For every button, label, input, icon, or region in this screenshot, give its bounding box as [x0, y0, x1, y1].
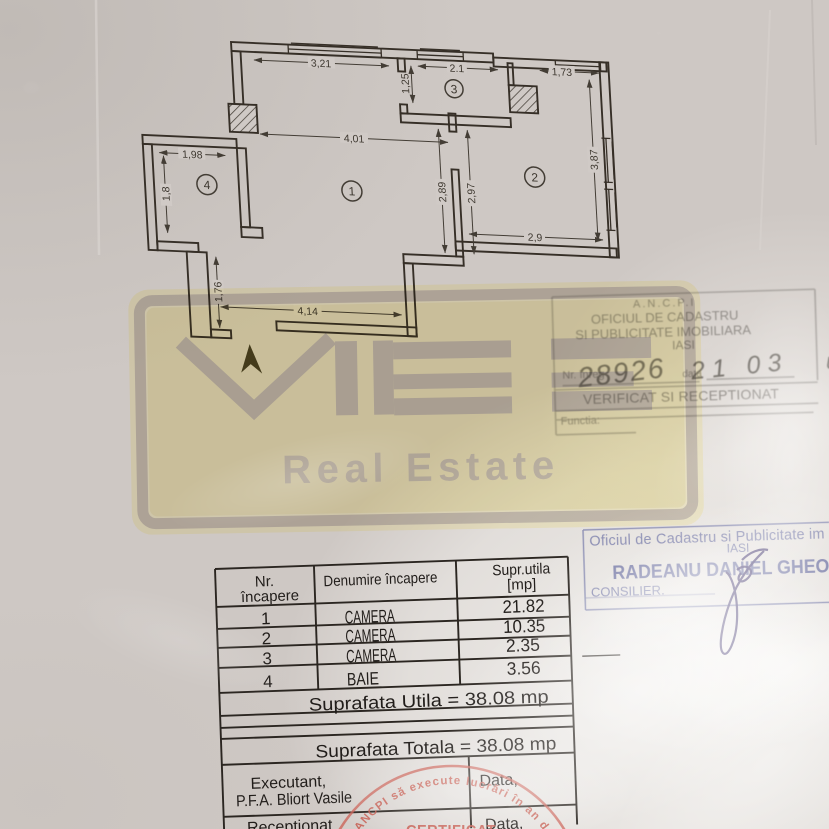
svg-text:Real Estate: Real Estate — [282, 444, 555, 493]
